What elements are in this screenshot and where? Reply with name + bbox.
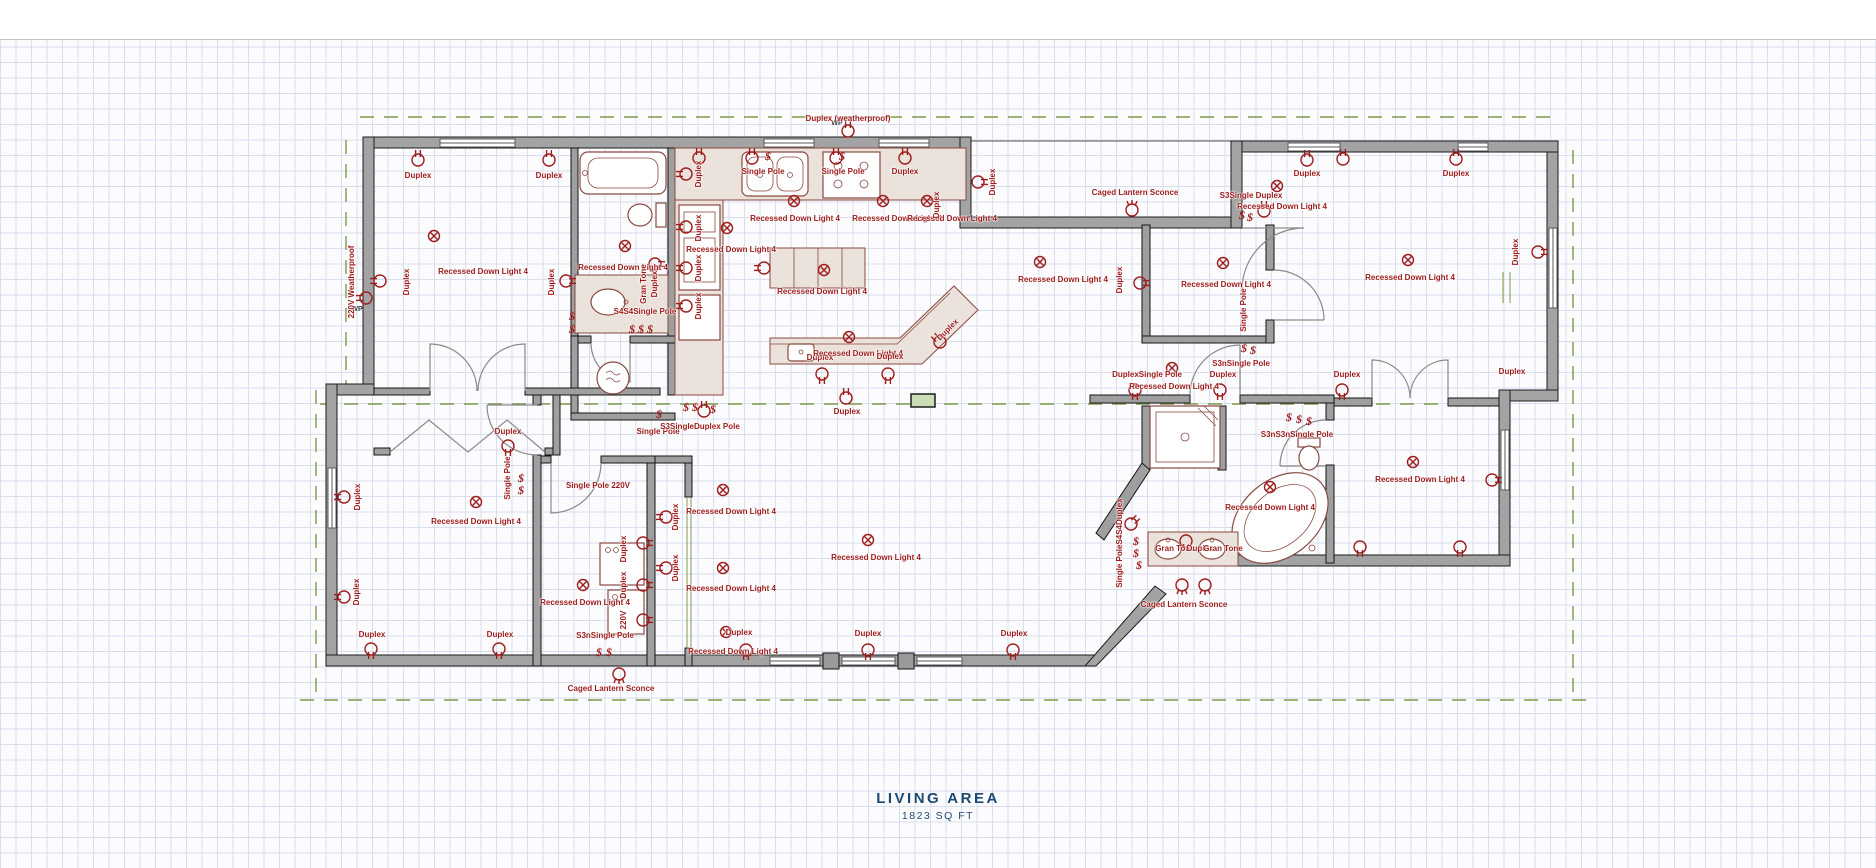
duplex-symbol	[746, 148, 758, 164]
duplex-symbol	[929, 331, 949, 351]
duplex-symbol	[899, 148, 911, 164]
plan-title: LIVING AREA	[876, 790, 1000, 807]
duplex-symbol	[656, 511, 672, 523]
light-symbol	[1403, 255, 1414, 266]
light-symbol	[718, 563, 729, 574]
switch-symbol	[1135, 558, 1142, 572]
duplex-symbol	[1301, 150, 1313, 166]
duplex-symbol	[676, 262, 692, 274]
switch-symbol	[1240, 341, 1247, 355]
light-symbol	[1408, 457, 1419, 468]
switch-symbol	[568, 309, 575, 323]
duplex-symbol	[365, 643, 377, 659]
light-symbol	[1218, 258, 1229, 269]
switch-symbol	[655, 407, 662, 421]
duplex-symbol	[656, 562, 672, 574]
switch-symbol	[709, 402, 716, 416]
duplex-symbol	[1450, 149, 1462, 165]
duplex-symbol	[1134, 277, 1150, 289]
duplex-symbol	[356, 292, 372, 304]
duplex-symbol	[816, 368, 828, 384]
light-symbol	[878, 196, 889, 207]
sconce-symbol	[1176, 579, 1188, 595]
switch-symbol	[1249, 343, 1256, 357]
switch-symbol	[1246, 210, 1253, 224]
light-symbol	[429, 231, 440, 242]
floorplan-page: $ WP DuplexDuplexRecessed Down Light 4Du…	[0, 0, 1876, 868]
sconce-symbol	[613, 668, 625, 684]
duplex-symbol	[637, 614, 653, 626]
switch-symbol	[517, 483, 524, 497]
duplex-symbol	[1129, 384, 1141, 400]
duplex-symbol	[972, 176, 988, 188]
light-symbol	[578, 580, 589, 591]
duplex-symbol	[676, 300, 692, 312]
duplex-symbol	[334, 591, 350, 603]
duplex-symbol	[1486, 474, 1502, 486]
duplex-symbol	[698, 401, 710, 417]
switch-symbol	[1295, 412, 1302, 426]
duplex-symbol	[543, 150, 555, 166]
switch-symbol	[595, 645, 602, 659]
light-symbol	[471, 497, 482, 508]
duplex-symbol	[1123, 513, 1143, 533]
duplex-symbol	[676, 168, 692, 180]
duplex-symbol	[502, 440, 514, 456]
duplex-symbol	[740, 644, 752, 660]
duplex-symbol	[1454, 541, 1466, 557]
duplex-symbol	[370, 275, 386, 287]
duplex-symbol	[1337, 149, 1349, 165]
light-symbol	[1167, 363, 1178, 374]
light-symbol	[722, 223, 733, 234]
sconce-symbol	[1126, 200, 1138, 216]
switch-symbol	[1285, 410, 1292, 424]
switch-symbol	[637, 322, 644, 336]
duplex-symbol	[862, 644, 874, 660]
switch-symbol	[646, 322, 653, 336]
duplex-symbol	[649, 258, 665, 270]
switch-symbol	[764, 149, 771, 163]
wp-symbol	[831, 120, 843, 127]
light-symbol	[819, 265, 830, 276]
duplex-symbol	[1214, 384, 1226, 400]
light-symbol	[718, 485, 729, 496]
light-symbol	[922, 196, 933, 207]
switch-symbol	[568, 322, 575, 336]
switch-symbol	[605, 645, 612, 659]
switch-symbol	[682, 400, 689, 414]
duplex-symbol	[676, 221, 692, 233]
duplex-symbol	[1354, 541, 1366, 557]
duplex-symbol	[560, 275, 576, 287]
switch-symbol	[1305, 414, 1312, 428]
switch-symbol	[628, 322, 635, 336]
switch-symbol	[838, 149, 845, 163]
duplex-symbol	[1007, 644, 1019, 660]
light-symbol	[1035, 257, 1046, 268]
light-symbol	[620, 241, 631, 252]
switch-symbol	[691, 400, 698, 414]
wp-symbol	[351, 306, 363, 313]
light-symbol	[721, 627, 732, 638]
light-symbol	[1272, 181, 1283, 192]
duplex-symbol	[493, 643, 505, 659]
duplex-symbol	[1336, 384, 1348, 400]
electrical-symbols-layer: $ WP	[0, 0, 1876, 868]
duplex-symbol	[1180, 535, 1192, 551]
duplex-symbol	[1258, 201, 1270, 217]
light-symbol	[789, 196, 800, 207]
duplex-symbol	[840, 388, 852, 404]
sconce-symbol	[1199, 579, 1211, 595]
duplex-symbol	[842, 121, 854, 137]
light-symbol	[1265, 482, 1276, 493]
switch-symbol	[1238, 208, 1245, 222]
plan-area: 1823 SQ FT	[876, 810, 1000, 822]
duplex-symbol	[412, 150, 424, 166]
duplex-symbol	[1532, 246, 1548, 258]
light-symbol	[863, 535, 874, 546]
duplex-symbol	[637, 579, 653, 591]
title-block: LIVING AREA 1823 SQ FT	[876, 790, 1000, 822]
light-symbol	[844, 332, 855, 343]
duplex-symbol	[882, 368, 894, 384]
duplex-symbol	[334, 491, 350, 503]
duplex-symbol	[754, 262, 770, 274]
duplex-symbol	[637, 537, 653, 549]
duplex-symbol	[693, 148, 705, 164]
